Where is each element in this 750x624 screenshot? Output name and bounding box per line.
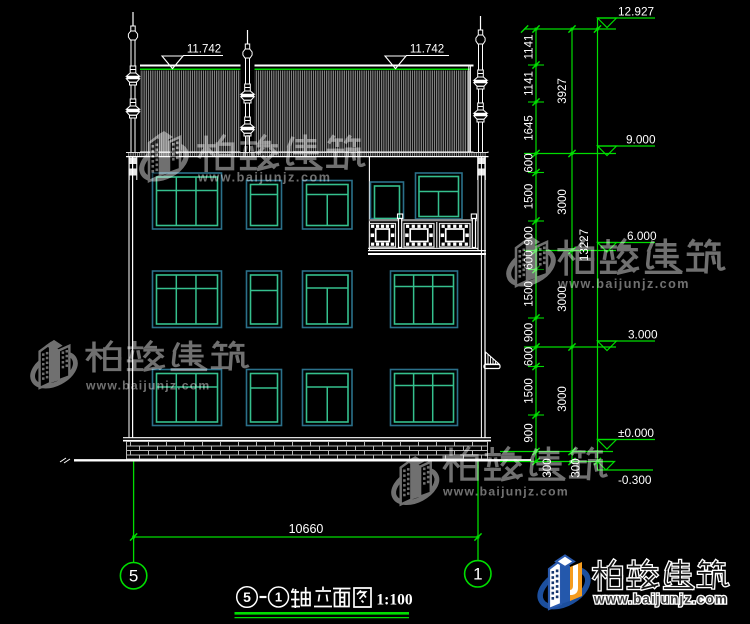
svg-text:12.927: 12.927 [618, 5, 654, 19]
svg-text:1645: 1645 [524, 115, 536, 141]
svg-text:www.baijunjz.com: www.baijunjz.com [442, 485, 569, 499]
svg-text:1141: 1141 [524, 71, 536, 96]
svg-text:5: 5 [243, 589, 251, 605]
svg-text:-0.300: -0.300 [618, 473, 652, 487]
svg-text:3.000: 3.000 [628, 328, 658, 342]
svg-text:11.742: 11.742 [187, 44, 221, 56]
svg-text:3927: 3927 [557, 78, 569, 104]
svg-text:www.baijunjz.com: www.baijunjz.com [593, 592, 728, 607]
svg-text:10660: 10660 [289, 522, 324, 536]
svg-text:900: 900 [524, 423, 536, 442]
svg-text:600: 600 [524, 347, 536, 366]
svg-text:1500: 1500 [524, 378, 536, 404]
svg-text:11.742: 11.742 [410, 44, 444, 56]
svg-text:9.000: 9.000 [626, 133, 656, 147]
svg-text:5: 5 [129, 567, 138, 586]
svg-text:1: 1 [473, 565, 482, 584]
svg-text:1:100: 1:100 [376, 592, 412, 609]
svg-text:1: 1 [275, 590, 282, 605]
svg-text:www.baijunjz.com: www.baijunjz.com [85, 379, 210, 393]
svg-text:1141: 1141 [524, 35, 536, 60]
svg-text:900: 900 [524, 323, 536, 342]
svg-text:±0.000: ±0.000 [618, 426, 654, 440]
svg-text:www.baijunjz.com: www.baijunjz.com [557, 277, 690, 291]
svg-text:www.baijunjz.com: www.baijunjz.com [197, 171, 332, 185]
svg-text:600: 600 [524, 153, 536, 172]
svg-text:1500: 1500 [524, 184, 536, 210]
svg-text:3000: 3000 [557, 386, 569, 412]
svg-text:3000: 3000 [557, 189, 569, 215]
